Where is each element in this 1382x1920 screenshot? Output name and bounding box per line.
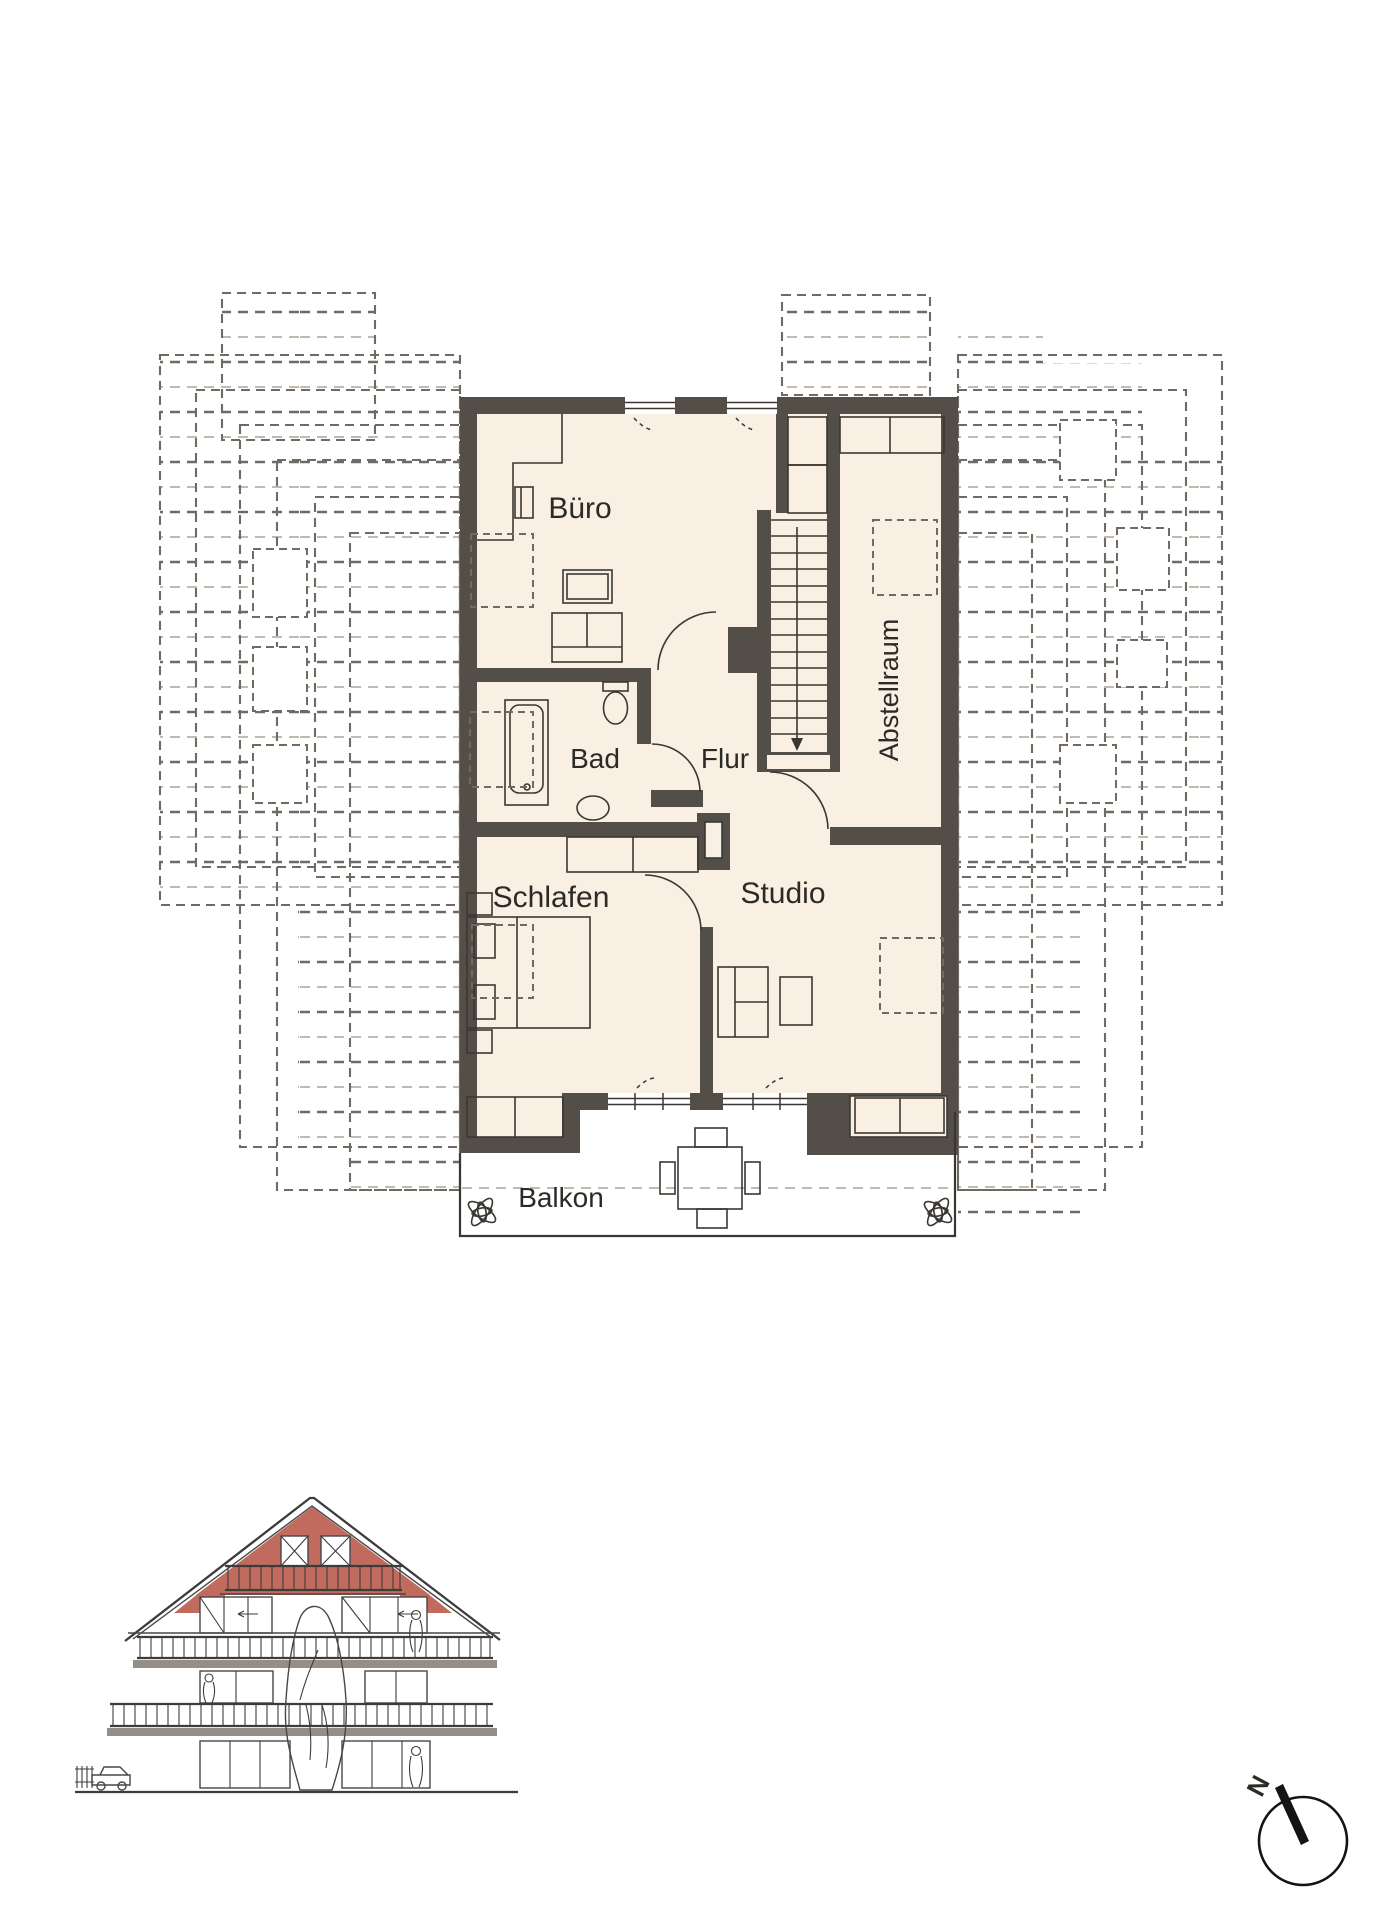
roof-window-marker <box>1060 745 1116 803</box>
flower-icon <box>921 1195 954 1228</box>
ground-floor-windows <box>200 1741 430 1788</box>
fence <box>75 1766 94 1788</box>
roof-window-marker <box>253 745 307 803</box>
roof-window-marker <box>1117 640 1167 687</box>
highlighted-attic-roof <box>196 1507 430 1595</box>
north-needle-icon <box>1275 1784 1309 1845</box>
roof-overhang-left <box>160 293 460 1190</box>
tree-icon <box>285 1606 346 1790</box>
room-label-balkon: Balkon <box>518 1182 604 1213</box>
room-label-abstellraum: Abstellraum <box>874 619 904 762</box>
balcony-chair <box>745 1162 760 1194</box>
balcony-table <box>678 1147 742 1209</box>
balcony-chair <box>660 1162 675 1194</box>
balcony-chair <box>695 1128 727 1147</box>
room-label-studio: Studio <box>740 877 825 910</box>
room-label-flur: Flur <box>701 743 749 774</box>
car-icon <box>92 1767 130 1790</box>
floor-plan-page: Büro Bad Flur Abstellraum Schlafen Studi… <box>0 0 1382 1920</box>
roof-window-marker <box>1060 420 1116 480</box>
roof-window-marker <box>1117 528 1169 590</box>
room-label-bad: Bad <box>570 743 620 774</box>
room-label-buero: Büro <box>548 492 611 525</box>
room-label-schlafen: Schlafen <box>493 881 610 914</box>
upper-balcony-railing <box>133 1637 497 1668</box>
north-label: N <box>1240 1770 1275 1801</box>
middle-floor-windows <box>200 1671 427 1703</box>
balcony-chair <box>697 1209 727 1228</box>
roof-window-marker <box>253 647 307 711</box>
flower-icon <box>465 1195 498 1228</box>
lower-balcony-railing <box>107 1704 497 1736</box>
roof-window-marker <box>253 549 307 617</box>
floor-plan-canvas: Büro Bad Flur Abstellraum Schlafen Studi… <box>0 0 1382 1920</box>
attic-windows <box>200 1597 427 1633</box>
elevation-drawing <box>75 1498 518 1792</box>
compass-icon: N <box>1240 1770 1347 1885</box>
